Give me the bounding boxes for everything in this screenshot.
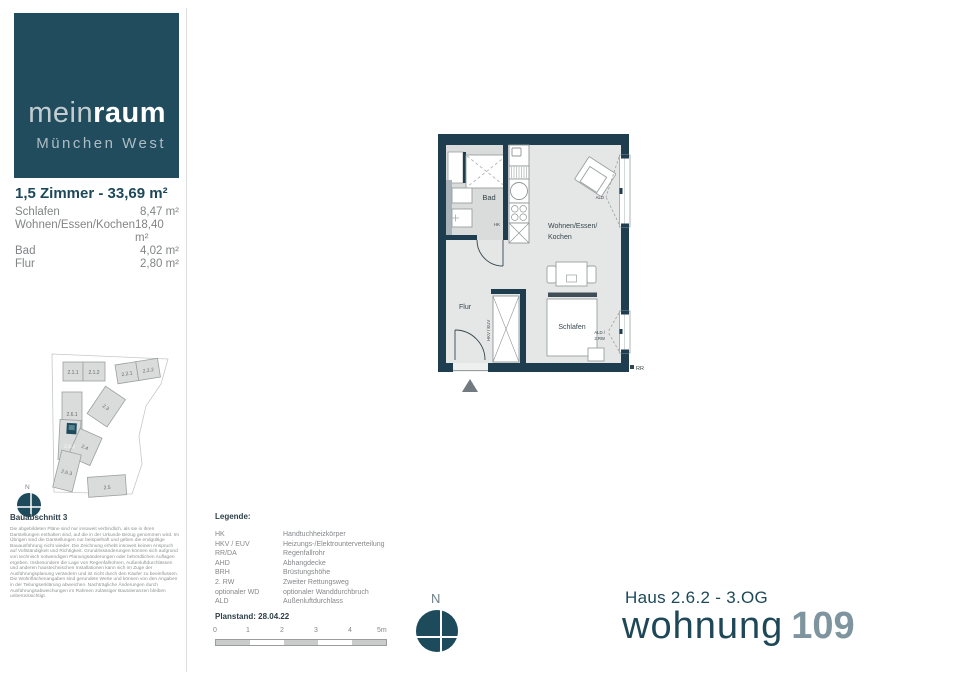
scale-tick: 3	[314, 627, 318, 634]
rr-label: RR	[636, 366, 644, 372]
wall-niche	[448, 152, 463, 183]
scale-tick: 2	[280, 627, 284, 634]
dining-set	[547, 262, 596, 286]
room-name: Bad	[15, 245, 35, 258]
room-label-flur: Flur	[459, 304, 472, 311]
shower	[466, 155, 507, 188]
wohnung-label: wohnung	[622, 605, 783, 647]
kitchen-unit	[509, 145, 529, 243]
scale-tick: 0	[213, 627, 217, 634]
room-row: Flur2,80 m²	[15, 258, 179, 271]
legend-abbr: AHD	[215, 559, 283, 569]
hkv-euv-label: HKV / EUV	[486, 320, 491, 341]
room-area-table: Schlafen8,47 m² Wohnen/Essen/Kochen18,40…	[15, 206, 179, 271]
plan-compass-icon: N	[410, 586, 468, 660]
legend-abbr: ALD	[215, 597, 283, 607]
room-label-wohnen-2: Kochen	[548, 234, 572, 241]
room-row: Wohnen/Essen/Kochen18,40 m²	[15, 219, 179, 245]
ald-rw-label-2: 2.RW	[594, 336, 606, 341]
scale-tick: 4	[348, 627, 352, 634]
legal-disclaimer: Die abgebildeten Pläne sind nur insoweit…	[10, 527, 180, 600]
unit-summary-title: 1,5 Zimmer - 33,69 m²	[15, 185, 168, 202]
room-label-schlafen: Schlafen	[558, 324, 585, 331]
legend-row: BRHBrüstungshöhe	[215, 568, 435, 578]
building-label: 2.6.2	[64, 444, 76, 451]
bath-wall-right	[503, 145, 508, 240]
hk-label: HK	[494, 222, 500, 227]
building-label: 2.5	[103, 485, 111, 491]
room-row: Schlafen8,47 m²	[15, 206, 179, 219]
sideboard	[548, 293, 597, 298]
brand-name-bold: raum	[93, 97, 166, 129]
wohnung-number: 109	[791, 605, 854, 647]
brand-name-light: mein	[28, 97, 93, 129]
brand-name: meinraum	[28, 99, 166, 128]
bath-wall-bottom	[446, 235, 477, 240]
legend-abbr: optionaler WD	[215, 588, 283, 598]
legend-desc: optionaler Wanddurchbruch	[283, 588, 369, 598]
legend-row: HKV / EUVHeizungs-/Elektrounterverteilun…	[215, 540, 435, 550]
legend-desc: Außenluftdurchlass	[283, 597, 343, 607]
hall-wall-right	[520, 289, 526, 363]
rr-marker-icon	[630, 365, 634, 369]
legend-row: optionaler WDoptionaler Wanddurchbruch	[215, 588, 435, 598]
legend-abbr: HK	[215, 530, 283, 540]
legend-row: AHDAbhangdecke	[215, 559, 435, 569]
room-row: Bad4,02 m²	[15, 245, 179, 258]
room-name: Wohnen/Essen/Kochen	[15, 219, 135, 245]
prewall-installation	[446, 180, 452, 236]
legend-desc: Handtuchheizkörper	[283, 530, 346, 540]
building-label: 2.6.1	[66, 412, 77, 418]
legend-table: HKHandtuchheizkörper HKV / EUVHeizungs-/…	[215, 530, 435, 607]
toilet	[452, 209, 472, 227]
brand-logo: meinraum München West	[14, 13, 179, 178]
room-area: 4,02 m²	[140, 245, 179, 258]
brand-subtitle: München West	[36, 135, 166, 152]
scale-tick: 1	[246, 627, 250, 634]
entrance-triangle-icon	[462, 379, 478, 392]
nightstand	[588, 348, 604, 361]
ald-label: ALD	[596, 195, 604, 200]
room-label-wohnen-1: Wohnen/Essen/	[548, 223, 597, 230]
legend-desc: Heizungs-/Elektrounterverteilung	[283, 540, 385, 550]
wohnung-title: wohnung109	[622, 606, 855, 648]
washbasin	[452, 188, 472, 203]
building-label: 2.1.1	[67, 370, 78, 376]
legend-row: 2. RWZweiter Rettungsweg	[215, 578, 435, 588]
room-label-bad: Bad	[482, 193, 495, 202]
legend-row: ALDAußenluftdurchlass	[215, 597, 435, 607]
north-label: N	[431, 591, 440, 606]
planstand: Planstand: 28.04.22	[215, 612, 289, 621]
scale-tick: 5m	[377, 627, 387, 634]
legend-heading: Legende:	[215, 512, 251, 521]
window-sleeping	[620, 311, 631, 353]
legend-abbr: HKV / EUV	[215, 540, 283, 550]
north-label: N	[25, 484, 30, 491]
legend-abbr: BRH	[215, 568, 283, 578]
site-plan: 2.1.1 2.1.2 2.2.1 2.2.2 2.6.1 2.6.2 2.3 …	[30, 344, 192, 516]
window-living	[620, 155, 631, 227]
floor-plan: Bad HK Wohnen/Essen/ Kochen Flur HKV / E…	[435, 120, 650, 395]
room-area: 8,47 m²	[140, 206, 179, 219]
legend-abbr: 2. RW	[215, 578, 283, 588]
legend-row: RR/DARegenfallrohr	[215, 549, 435, 559]
wardrobe	[493, 296, 519, 362]
scale-bar: 0 1 2 3 4 5m	[213, 627, 393, 649]
room-name: Schlafen	[15, 206, 60, 219]
legend-desc: Abhangdecke	[283, 559, 326, 569]
legend-row: HKHandtuchheizkörper	[215, 530, 435, 540]
legend-desc: Zweiter Rettungsweg	[283, 578, 349, 588]
site-plan-heading: Bauabschnitt 3	[10, 513, 67, 522]
ald-rw-label-1: ALD /	[594, 330, 606, 335]
scale-bar-segments	[215, 639, 387, 646]
room-name: Flur	[15, 258, 35, 271]
room-area: 18,40 m²	[135, 219, 179, 245]
legend-desc: Regenfallrohr	[283, 549, 325, 559]
vertical-divider	[186, 8, 187, 672]
room-area: 2,80 m²	[140, 258, 179, 271]
building-label: 2.1.2	[88, 370, 99, 376]
unit-location-marker	[66, 423, 77, 435]
legend-abbr: RR/DA	[215, 549, 283, 559]
legend-desc: Brüstungshöhe	[283, 568, 330, 578]
